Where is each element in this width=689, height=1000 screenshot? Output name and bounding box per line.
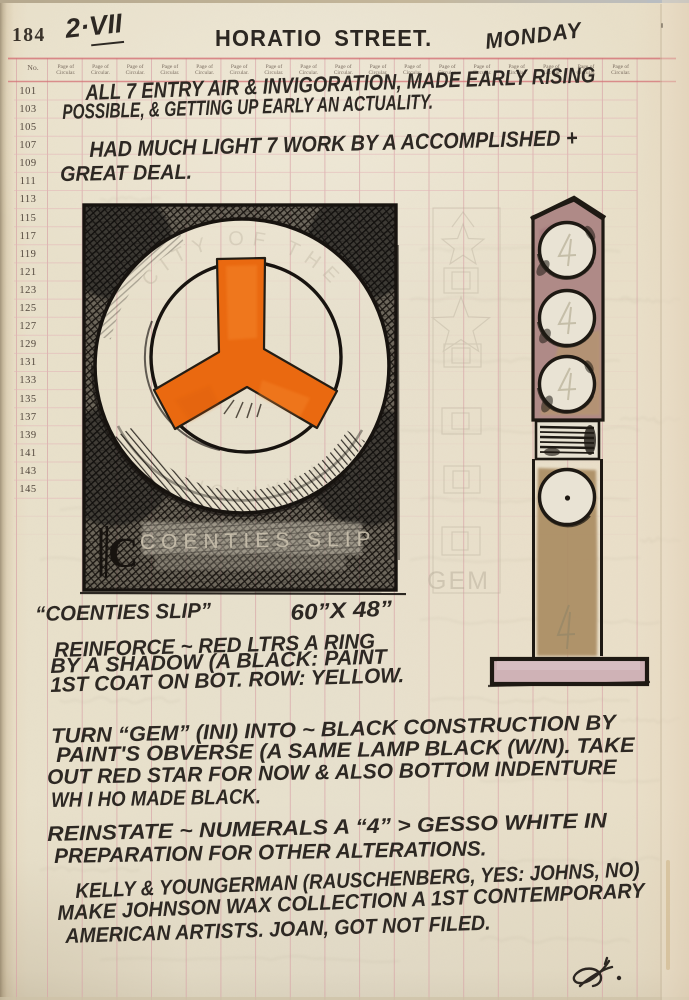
- svg-text:C: C: [108, 531, 138, 577]
- svg-text:COΕNTIΕS SLIP: COΕNTIΕS SLIP: [140, 528, 377, 554]
- svg-text:GΕM: GΕM: [427, 567, 490, 595]
